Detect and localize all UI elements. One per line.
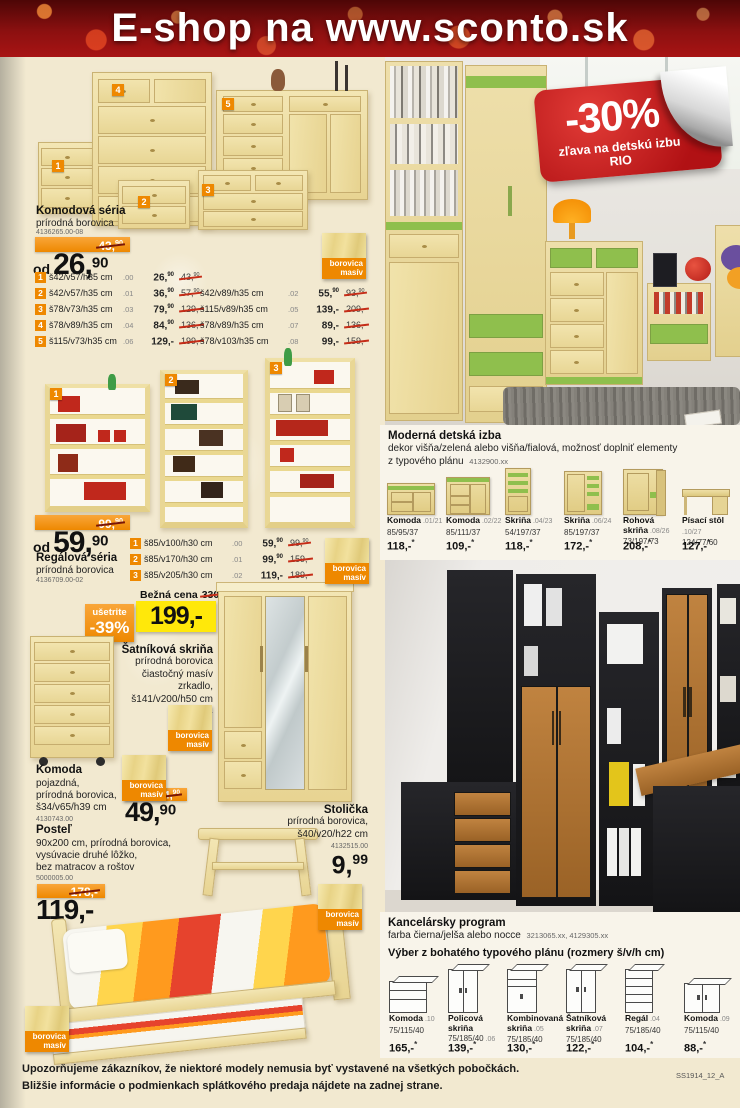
books xyxy=(654,292,704,314)
regular-price-label: Bežná cena 330,- xyxy=(140,589,227,601)
dimensions: š85/v100/h30 cm xyxy=(144,538,232,548)
product-cell: Komoda .0975/115/40 88,-* xyxy=(683,968,740,1052)
series-material: prírodná borovica xyxy=(36,218,114,229)
old-price: 57,90 xyxy=(180,288,201,298)
pine-wide-chest-art xyxy=(198,170,308,230)
book-decor xyxy=(201,482,223,498)
tall-cabinet xyxy=(516,574,596,906)
product-cell: Komoda .01/2185/95/37 118,-* xyxy=(386,470,444,554)
paper-stack xyxy=(607,624,643,664)
price: 129,- xyxy=(140,336,180,347)
photo-tag-5: 5 xyxy=(222,98,234,110)
price-row: 1š85/v100/h30 cm.0059,9099,90 xyxy=(130,538,310,554)
page-title: E-shop na www.sconto.sk xyxy=(0,6,740,51)
price-row: š42/v89/h35 cm.0255,9093,90 xyxy=(200,288,366,304)
item-number-tag: 1 xyxy=(35,272,46,283)
jar-decor xyxy=(296,394,310,412)
old-price: 159,- xyxy=(289,554,312,564)
green-vase-decor xyxy=(108,374,116,390)
candlestick-decor xyxy=(335,61,338,91)
section-title: Kancelársky program xyxy=(388,917,506,929)
footer-line1: Upozorňujeme zákazníkov, že niektoré mod… xyxy=(22,1063,519,1075)
price-row: 1š42/v57/h35 cm.0026,9043,90 xyxy=(35,272,201,288)
books xyxy=(720,676,736,702)
section-desc: farba čierna/jelša alebo nocce 3213065.x… xyxy=(388,930,608,941)
vase-decor xyxy=(271,69,285,91)
door-handle xyxy=(260,646,263,672)
pine-small-chest-art xyxy=(118,180,190,229)
old-price: 159,- xyxy=(345,336,368,346)
tall-shelf-art xyxy=(160,370,248,528)
photo-tag-1: 1 xyxy=(50,388,62,400)
pine-shelves-photo: 1 2 3 xyxy=(20,352,375,522)
variant-code: .01 xyxy=(123,289,140,298)
print-code: SS1914_12_A xyxy=(676,1071,724,1080)
old-price: 136,- xyxy=(345,320,368,330)
wood-texture xyxy=(318,884,362,909)
product-cell: Kombinovaná skriňa .0575/185/40 130,-* xyxy=(506,968,564,1052)
product-line: pojazdná, xyxy=(36,778,79,789)
lamp-shade xyxy=(553,199,591,223)
wood-drawer xyxy=(454,844,511,868)
box-decor xyxy=(199,430,223,446)
jar-decor xyxy=(278,394,292,412)
product-cell: Komoda .1075/115/40 165,-* xyxy=(388,968,446,1052)
price: 99,90 xyxy=(249,554,289,565)
old-price: 189,- xyxy=(289,570,312,580)
bed-pillow xyxy=(66,928,128,974)
red-case-decor xyxy=(56,424,86,442)
product-cell: Šatníková skriňa .0775/185/40 122,-* xyxy=(565,968,623,1052)
red-box-decor xyxy=(300,474,334,488)
variant-code: .00 xyxy=(232,539,249,548)
price: 119,- xyxy=(249,570,289,581)
section-title: Moderná detská izba xyxy=(388,430,501,442)
product-code: 4130743.00 xyxy=(36,816,73,823)
catalog-page: E-shop na www.sconto.sk 1 xyxy=(0,0,740,1108)
product-cell: Skriňa .04/2354/197/37 118,-* xyxy=(504,470,562,554)
old-price: 209,- xyxy=(345,304,368,314)
header-banner: E-shop na www.sconto.sk xyxy=(0,0,740,57)
price-row: 4š78/v89/h35 cm.0484,90136,- xyxy=(35,320,203,336)
book-decor xyxy=(171,404,197,420)
rolling-chest-art xyxy=(30,636,114,758)
regal-icon xyxy=(625,969,653,1013)
wood-drawer xyxy=(454,818,511,842)
variant-code: .06 xyxy=(123,337,140,346)
borovica-masiv-badge: borovicamasív xyxy=(122,755,166,801)
item-number-tag: 3 xyxy=(130,570,141,581)
product-line: prírodná borovica, xyxy=(36,790,117,801)
price-row: 2š42/v57/h35 cm.0136,9057,90 xyxy=(35,288,201,304)
kids-commode xyxy=(545,241,643,385)
price-row: 5š115/v73/h35 cm.06129,-199,- xyxy=(35,336,203,352)
series-title: Komodová séria xyxy=(36,205,125,217)
price: 79,90 xyxy=(140,304,180,315)
caster-wheel xyxy=(96,757,105,766)
binder xyxy=(524,646,538,676)
red-box-decor xyxy=(314,370,334,384)
binder xyxy=(619,828,629,876)
price-row: š78/v89/h35 cm.0789,-136,- xyxy=(200,320,368,336)
desk-panel xyxy=(653,786,740,912)
product-line: vysúvacie druhé lôžko, xyxy=(36,850,137,861)
tall-shelf-art xyxy=(265,358,355,528)
corner-side xyxy=(656,470,666,516)
product-line: 90x200 cm, prírodná borovica, xyxy=(36,838,171,849)
price: 99,- xyxy=(305,336,345,347)
kombinovana-skrina-icon xyxy=(507,969,537,1013)
binder xyxy=(524,584,542,626)
price-row: š115/v89/h35 cm.05139,-209,- xyxy=(200,304,368,320)
old-price: 43,90 xyxy=(180,272,201,282)
price: 84,90 xyxy=(140,320,180,331)
wood-drawer xyxy=(454,792,511,816)
item-number-tag: 1 xyxy=(130,538,141,549)
books xyxy=(720,598,736,624)
low-cabinet xyxy=(401,782,517,900)
red-tin-decor xyxy=(58,454,78,472)
shelf-unit xyxy=(599,612,659,906)
binder xyxy=(546,588,562,626)
green-vase-decor xyxy=(284,348,292,366)
price: 36,90 xyxy=(140,288,180,299)
pine-nightstand-art xyxy=(38,142,96,214)
photo-tag-1: 1 xyxy=(52,160,64,172)
item-number-tag: 3 xyxy=(35,304,46,315)
red-cup-decor xyxy=(280,448,294,462)
price: 9,99 xyxy=(240,851,368,880)
price: 59,90 xyxy=(249,538,289,549)
book-decor xyxy=(175,380,199,394)
variant-code: .02 xyxy=(288,289,305,298)
section-desc: dekor višňa/zelená alebo višňa/fialová, … xyxy=(388,443,677,454)
photo-tag-3: 3 xyxy=(270,362,282,374)
red-crate-decor xyxy=(84,482,126,500)
series-title: Regálová séria xyxy=(36,552,117,564)
section-desc2: z typového plánu 4132900.xx xyxy=(388,456,508,467)
kids-nightstand xyxy=(647,283,711,361)
item-number-tag: 2 xyxy=(130,554,141,565)
book-decor xyxy=(173,456,195,472)
dimensions: š42/v57/h35 cm xyxy=(49,288,123,298)
dimensions: š115/v73/h35 cm xyxy=(49,336,123,346)
office-photo xyxy=(385,560,740,912)
books xyxy=(390,66,458,118)
binder xyxy=(631,828,641,876)
price: 89,- xyxy=(305,320,345,331)
books xyxy=(390,170,458,216)
price-row: 2š85/v170/h30 cm.0199,90159,- xyxy=(130,554,312,570)
binder xyxy=(607,828,617,876)
photo-tag-2: 2 xyxy=(165,374,177,386)
item-number-tag: 2 xyxy=(35,288,46,299)
old-price: 93,90 xyxy=(345,288,366,298)
footer-line2: Bližšie informácie o podmienkach splátko… xyxy=(22,1080,443,1092)
pisaci-stol-thumb xyxy=(682,489,730,515)
product-line: bez matracov a roštov xyxy=(36,862,134,873)
price: 55,90 xyxy=(305,288,345,299)
bed-photo xyxy=(58,892,353,1067)
product-title: Stolička xyxy=(240,804,368,816)
series-code: 4136265.00-08 xyxy=(36,229,83,236)
borovica-masiv-badge: borovicamasív xyxy=(25,1006,69,1052)
dimensions: š42/v57/h35 cm xyxy=(49,272,123,282)
variant-code: .00 xyxy=(123,273,140,282)
stool-text-block: Stolička prírodná borovica,š40/v20/h22 c… xyxy=(240,804,368,880)
books xyxy=(390,124,458,164)
product-cell: Komoda .02/2285/111/37 109,-* xyxy=(445,470,503,554)
yellow-binder xyxy=(609,762,629,806)
series-code: 4136709.00-02 xyxy=(36,577,83,584)
lamp-stem xyxy=(569,223,575,239)
satnikova-skrina-icon xyxy=(566,969,596,1013)
dimensions: š78/v89/h35 cm xyxy=(200,320,288,330)
photo-tag-4: 4 xyxy=(112,84,124,96)
variant-code: .07 xyxy=(288,321,305,330)
policova-skrina-icon xyxy=(448,969,478,1013)
dimensions: š42/v89/h35 cm xyxy=(200,288,288,298)
red-ball-pillow xyxy=(685,257,711,281)
wood-texture xyxy=(322,233,366,258)
variant-code: .04 xyxy=(123,321,140,330)
kids-wardrobe xyxy=(465,65,547,423)
product-cell: Písací stôl .10/27124/77/60 127,-* xyxy=(681,470,739,554)
dimensions: š78/v89/h35 cm xyxy=(49,320,123,330)
binder xyxy=(607,708,621,744)
price: 26,90 xyxy=(140,272,180,283)
kids-room-photo: -30% zľava na detskú izbu RIO xyxy=(385,57,740,425)
item-number-tag: 4 xyxy=(35,320,46,331)
dimensions: š85/v205/h30 cm xyxy=(144,570,232,580)
dimensions: š78/v73/h35 cm xyxy=(49,304,123,314)
variant-code: .02 xyxy=(232,571,249,580)
komoda-icon xyxy=(389,981,427,1013)
red-crate-decor xyxy=(276,420,328,436)
borovica-masiv-badge: borovicamasív xyxy=(318,884,362,930)
promo-price: 199,- xyxy=(136,601,216,632)
komoda-thumb xyxy=(387,483,435,515)
variant-code: .08 xyxy=(288,337,305,346)
wood-texture xyxy=(25,1006,69,1031)
product-cell: Regál .0475/185/40 104,-* xyxy=(624,968,682,1052)
series-material: prírodná borovica xyxy=(36,565,114,576)
product-code: 4132515.00 xyxy=(240,843,368,850)
product-cell: Rohová skriňa .08/2673/197/73 208,-* xyxy=(622,470,680,554)
skrina-thumb xyxy=(564,471,602,515)
door-handle xyxy=(508,186,512,216)
komoda-thumb xyxy=(446,477,490,515)
product-title: Komoda xyxy=(36,764,82,776)
discount-sticker: -30% zľava na detskú izbu RIO xyxy=(533,75,722,183)
price-row: 3š78/v73/h35 cm.0379,90129,- xyxy=(35,304,203,320)
product-line: š34/v65/h39 cm xyxy=(36,802,107,813)
photo-tag-3: 3 xyxy=(202,184,214,196)
product-cell: Policová skriňa75/185/40 .06 139,-* xyxy=(447,968,505,1052)
red-cup-decor xyxy=(98,430,110,442)
variant-code: .01 xyxy=(232,555,249,564)
mirror xyxy=(265,596,305,790)
skrina-thumb xyxy=(505,468,531,515)
price: 139,- xyxy=(305,304,345,315)
wood-texture xyxy=(122,755,166,780)
wardrobe-art xyxy=(218,585,352,802)
dimensions: š78/v103/h35 cm xyxy=(200,336,288,346)
product-cell: Skriňa .06/2485/197/37 172,-* xyxy=(563,470,621,554)
mini-hifi xyxy=(653,253,677,287)
dimensions: š115/v89/h35 cm xyxy=(200,304,288,314)
product-code: 5000005.00 xyxy=(36,875,73,882)
borovica-masiv-badge: borovicamasív xyxy=(322,233,366,279)
photo-tag-2: 2 xyxy=(138,196,150,208)
rohova-skrina-thumb xyxy=(623,469,663,515)
wood-doors xyxy=(521,686,591,898)
section-subtitle: Výber z bohatého typového plánu (rozmery… xyxy=(388,947,664,959)
item-number-tag: 5 xyxy=(35,336,46,347)
kids-bookshelf xyxy=(385,61,463,421)
wood-drawer xyxy=(454,870,511,894)
door-handle xyxy=(305,646,308,672)
wood-texture xyxy=(325,538,369,563)
candlestick-decor xyxy=(345,65,348,91)
bookcase-art xyxy=(45,384,150,512)
black-tower xyxy=(447,570,513,795)
borovica-masiv-badge: borovicamasív xyxy=(325,538,369,584)
variant-code: .05 xyxy=(288,305,305,314)
old-price: 99,90 xyxy=(289,538,310,548)
dimensions: š85/v170/h30 cm xyxy=(144,554,232,564)
borovica-masiv-badge: borovicamasív xyxy=(168,705,212,751)
red-cup-decor xyxy=(114,430,126,442)
wood-texture xyxy=(168,705,212,730)
variant-code: .03 xyxy=(123,305,140,314)
komoda-icon xyxy=(684,983,720,1013)
product-title: Posteľ xyxy=(36,824,72,836)
sale-price: 49,90 xyxy=(125,797,176,828)
